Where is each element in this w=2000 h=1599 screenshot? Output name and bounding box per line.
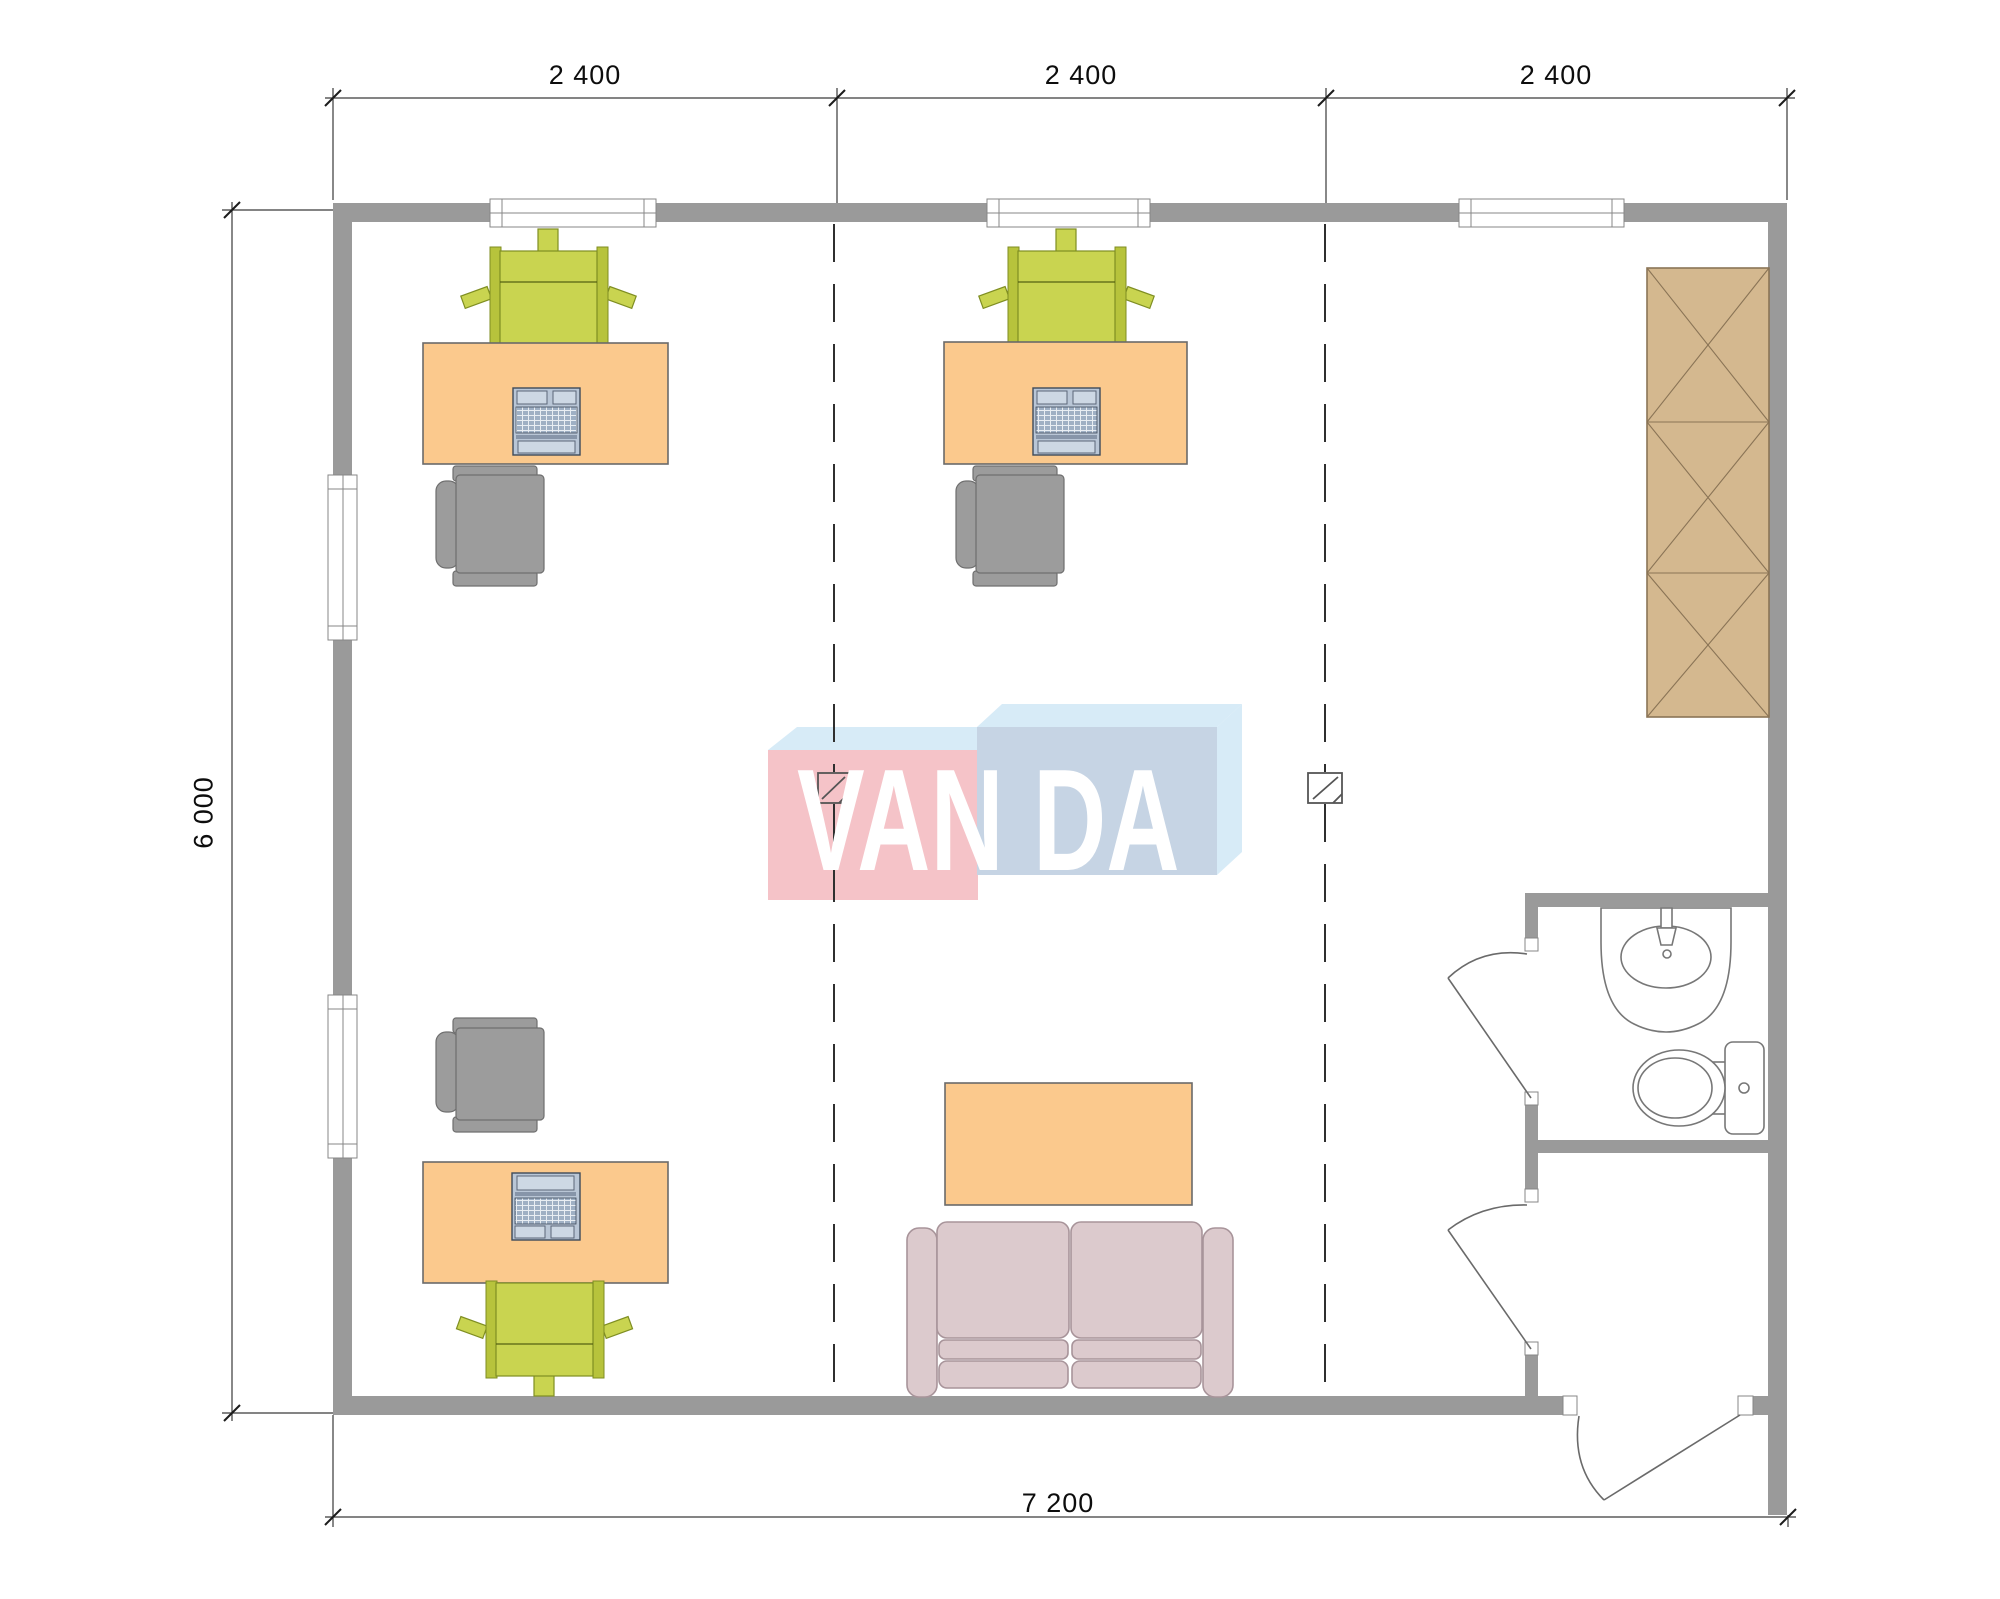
dimension-label-left: 6 000: [189, 753, 220, 873]
window: [328, 995, 357, 1158]
office-chair-green: [461, 229, 636, 344]
entrance-door: [1563, 1396, 1753, 1500]
office-chair-gray: [436, 466, 544, 586]
laptop: [512, 1173, 580, 1240]
dimension-label-top-3: 2 400: [1496, 60, 1616, 91]
office-chair-gray: [436, 1018, 544, 1132]
laptop: [513, 388, 580, 455]
sink: [1601, 908, 1731, 1032]
floor-plan: 2 400 2 400 2 400 6 000 7 200 VAN DA: [0, 0, 2000, 1599]
vestibule-door: [1448, 1189, 1538, 1355]
office-chair-green: [456, 1281, 632, 1396]
laptop: [1033, 388, 1100, 455]
window: [328, 475, 357, 640]
sofa: [907, 1222, 1233, 1397]
column-symbol: [1308, 773, 1342, 803]
watermark-text-left: VAN: [797, 748, 1004, 893]
dimension-label-top-1: 2 400: [525, 60, 645, 91]
window: [490, 199, 656, 227]
workstation: [423, 1018, 668, 1396]
dimension-label-top-2: 2 400: [1021, 60, 1141, 91]
workstation: [423, 229, 668, 586]
coffee-table: [945, 1083, 1192, 1205]
window: [987, 199, 1150, 227]
office-chair-gray: [956, 466, 1064, 586]
dimension-label-bottom: 7 200: [998, 1488, 1118, 1519]
watermark-text-right: DA: [1033, 748, 1180, 893]
wardrobe: [1647, 268, 1769, 717]
window: [1459, 199, 1624, 227]
bathroom-door: [1448, 938, 1538, 1105]
office-chair-green: [979, 229, 1154, 344]
workstation: [944, 229, 1187, 586]
toilet: [1633, 1042, 1764, 1134]
